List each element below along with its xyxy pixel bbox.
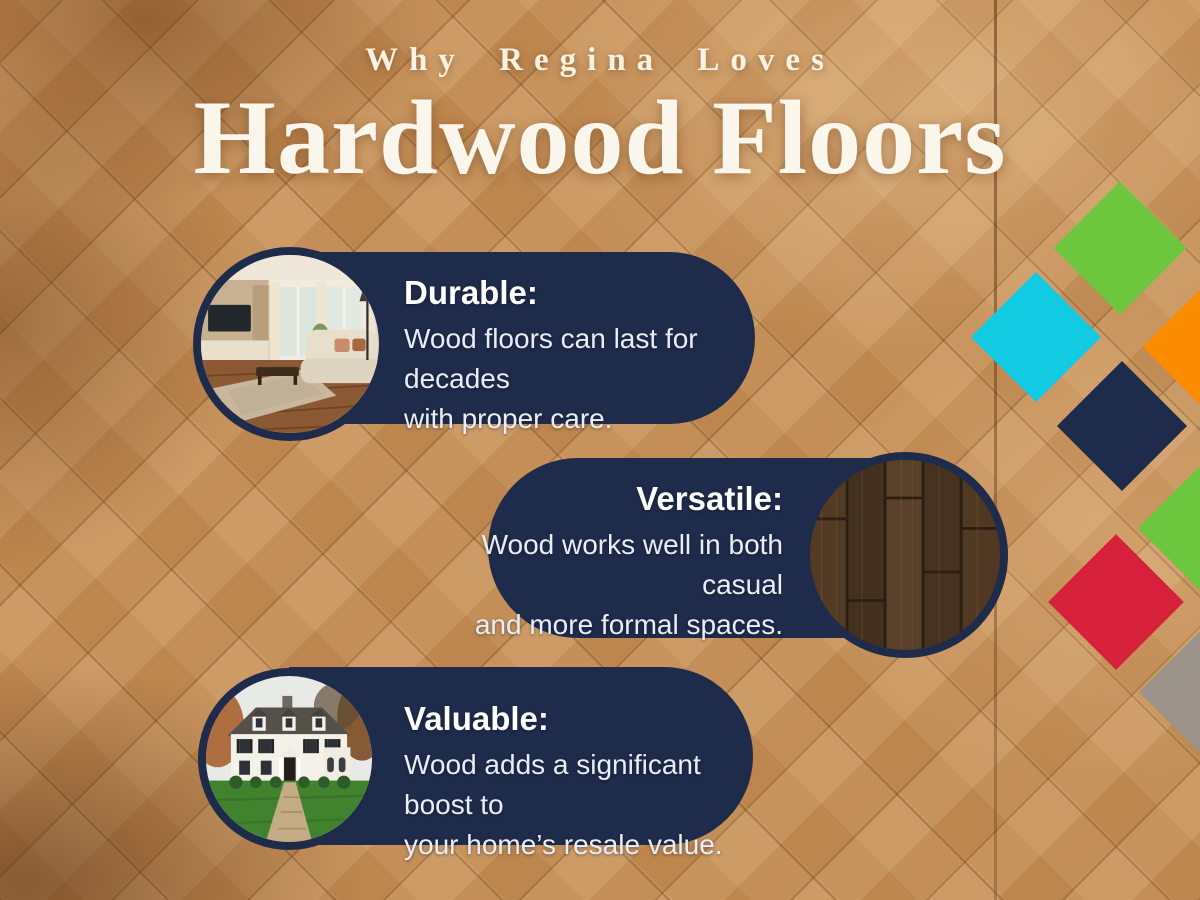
page-title: Hardwood Floors — [0, 85, 1200, 191]
infographic-canvas: Why Regina Loves Hardwood Floors — [0, 0, 1200, 900]
living-room-photo — [193, 247, 387, 441]
house-illustration — [206, 676, 372, 842]
house-photo — [198, 668, 380, 850]
card-durable-heading: Durable: — [404, 274, 744, 312]
card-durable-body: Wood floors can last for decadeswith pro… — [404, 319, 744, 439]
card-valuable-heading: Valuable: — [404, 700, 744, 738]
living-room-illustration — [201, 255, 379, 433]
title-block: Why Regina Loves Hardwood Floors — [0, 42, 1200, 191]
card-durable-text: Durable: Wood floors can last for decade… — [404, 274, 744, 439]
dark-wood-floor-photo — [802, 452, 1008, 658]
card-valuable-text: Valuable: Wood adds a significant boost … — [404, 700, 744, 865]
card-versatile-text: Versatile: Wood works well in both casua… — [453, 480, 783, 645]
card-versatile-body: Wood works well in both casualand more f… — [453, 525, 783, 645]
dark-wood-floor-illustration — [810, 460, 1000, 650]
card-valuable-body: Wood adds a significant boost toyour hom… — [404, 745, 744, 865]
eyebrow-title: Why Regina Loves — [0, 42, 1200, 79]
card-versatile-heading: Versatile: — [453, 480, 783, 518]
